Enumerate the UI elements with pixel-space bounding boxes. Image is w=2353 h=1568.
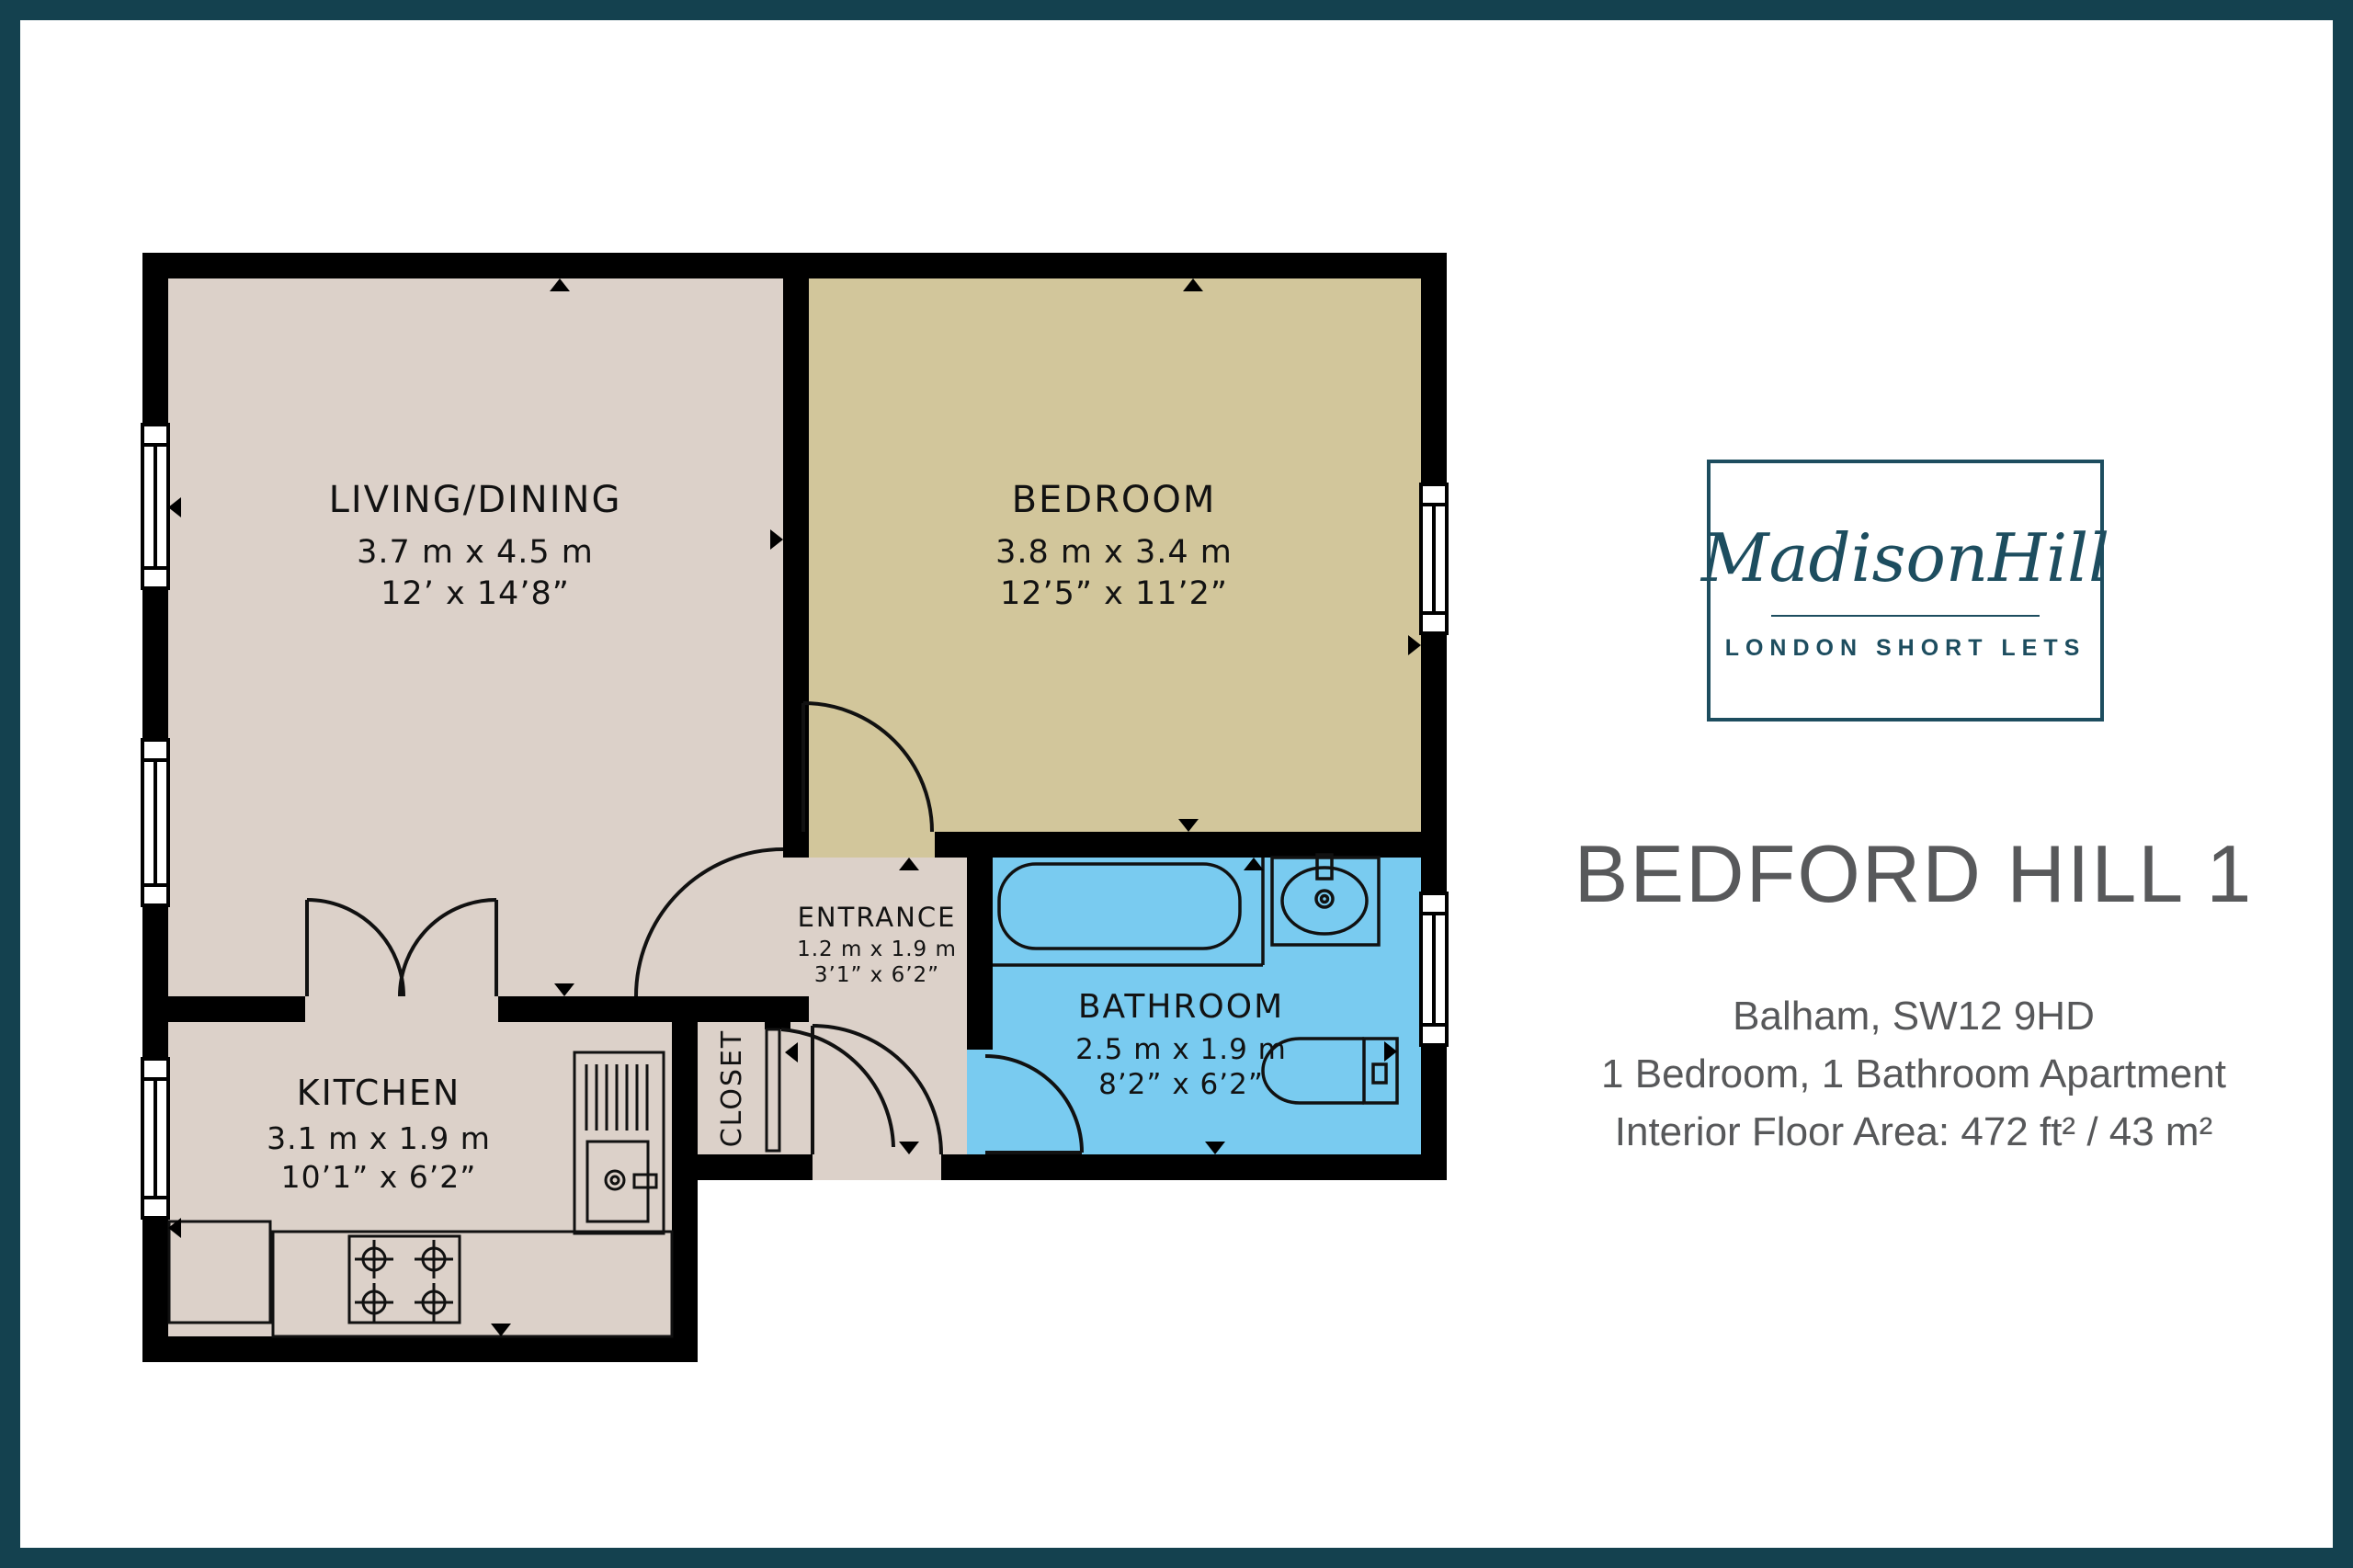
window-living-2 (142, 740, 168, 905)
bedroom-door-gap (809, 832, 935, 858)
living-label: LIVING/DINING (329, 479, 622, 521)
window-kitchen (142, 1059, 168, 1218)
property-summary: 1 Bedroom, 1 Bathroom Apartment (1454, 1045, 2353, 1103)
window-living-1 (142, 425, 168, 588)
french-door-gap (305, 996, 498, 1022)
logo-divider (1771, 615, 2040, 617)
living-dim-ft: 12’ x 14’8” (381, 575, 570, 612)
property-floor-area: Interior Floor Area: 472 ft² / 43 m² (1454, 1103, 2353, 1161)
floorplan: LIVING/DINING 3.7 m x 4.5 m 12’ x 14’8” … (131, 241, 1472, 1371)
property-title: BEDFORD HILL 1 (1454, 827, 2353, 921)
kitchen-dim-ft: 10’1” x 6’2” (281, 1159, 477, 1195)
kitchen-label: KITCHEN (297, 1073, 461, 1113)
bathroom-dim-m: 2.5 m x 1.9 m (1075, 1033, 1287, 1066)
bathroom-dim-ft: 8’2” x 6’2” (1098, 1068, 1264, 1101)
bedroom-dim-m: 3.8 m x 3.4 m (995, 534, 1233, 571)
window-bedroom (1421, 484, 1447, 633)
bathroom-label: BATHROOM (1078, 988, 1284, 1026)
brand-wordmark: MadisonHill (1701, 525, 2109, 591)
page: LIVING/DINING 3.7 m x 4.5 m 12’ x 14’8” … (0, 0, 2353, 1568)
brand-tagline: LONDON SHORT LETS (1725, 635, 2086, 662)
bedroom-label: BEDROOM (1012, 479, 1217, 521)
closet-label: CLOSET (716, 1029, 748, 1148)
living-floor (168, 278, 783, 996)
bathroom-door-gap (967, 1050, 993, 1154)
living-dim-m: 3.7 m x 4.5 m (357, 534, 594, 571)
kitchen-dim-m: 3.1 m x 1.9 m (267, 1120, 491, 1156)
front-door-gap (813, 1154, 941, 1180)
bedroom-dim-ft: 12’5” x 11’2” (1000, 575, 1228, 612)
property-details: Balham, SW12 9HD 1 Bedroom, 1 Bathroom A… (1454, 987, 2353, 1161)
brand-logo: MadisonHill LONDON SHORT LETS (1707, 460, 2104, 722)
property-address: Balham, SW12 9HD (1454, 987, 2353, 1045)
entrance-label: ENTRANCE (798, 902, 957, 933)
entrance-dim-ft: 3’1” x 6’2” (814, 963, 939, 987)
window-bathroom (1421, 893, 1447, 1045)
entrance-dim-m: 1.2 m x 1.9 m (797, 937, 957, 961)
